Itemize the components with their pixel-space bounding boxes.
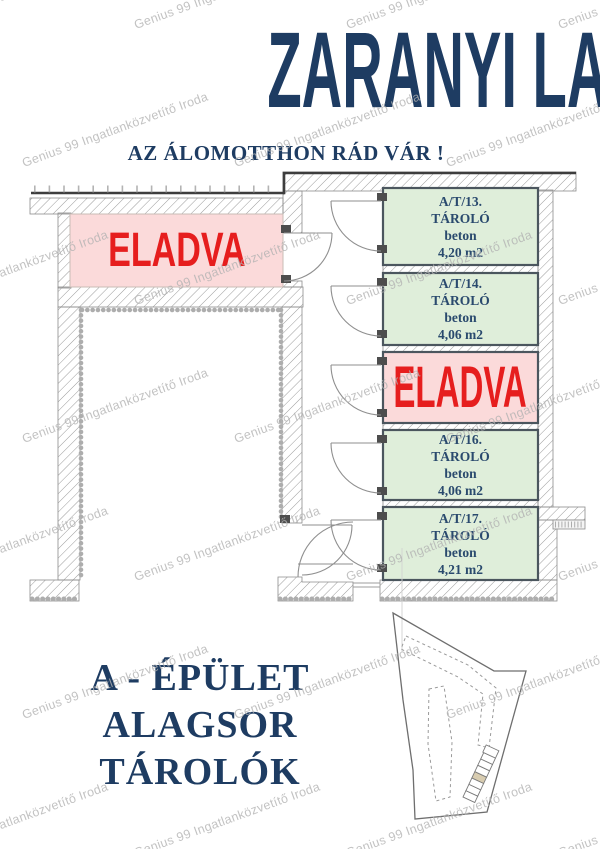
building-outline-left [428, 686, 452, 801]
unit-id: A/T/17. [439, 510, 482, 527]
door-at13 [331, 201, 381, 251]
wall-bigroom-west [58, 307, 80, 580]
unit-area: 4,06 m2 [438, 326, 483, 343]
unit-area: 4,20 m2 [438, 244, 483, 261]
wall-right-step-footing [553, 520, 585, 529]
wall-right [538, 190, 553, 507]
flyer-page: ZARANYI LAKÓPARK AZ ÁLOMOTTHON RÁD VÁR !… [0, 0, 600, 849]
footer-line1: A - ÉPÜLET [0, 655, 400, 702]
wall-bigroom-east [282, 307, 302, 523]
room-at16: A/T/16. TÁROLÓ beton 4,06 m2 [383, 430, 538, 500]
unit-type: TÁROLÓ [431, 292, 490, 309]
unit-type: TÁROLÓ [431, 527, 490, 544]
wall-right-step [538, 507, 585, 520]
unit-material: beton [444, 544, 476, 561]
unit-material: beton [444, 227, 476, 244]
site-boundary [393, 613, 526, 819]
unit-material: beton [444, 465, 476, 482]
unit-type: TÁROLÓ [431, 210, 490, 227]
door-sold-right [331, 365, 381, 415]
room-sold-right: ELADVA [383, 352, 538, 423]
unit-id: A/T/13. [439, 193, 482, 210]
page-subtitle: AZ ÁLOMOTTHON RÁD VÁR ! [0, 141, 572, 165]
footer-heading: A - ÉPÜLET ALAGSOR TÁROLÓK [0, 655, 400, 796]
door-at14 [331, 286, 381, 336]
sold-label: ELADVA [108, 227, 246, 275]
room-at14: A/T/14. TÁROLÓ beton 4,06 m2 [383, 273, 538, 345]
room-at13: A/T/13. TÁROLÓ beton 4,20 m2 [383, 188, 538, 265]
page-title: ZARANYI LAKÓPARK [0, 16, 600, 124]
building-outline-upper [401, 636, 496, 748]
unit-area: 4,06 m2 [438, 482, 483, 499]
wall-top-left-band [30, 198, 283, 214]
site-map [393, 613, 526, 819]
unit-id: A/T/16. [439, 431, 482, 448]
wall-between-13-14 [383, 265, 538, 273]
door-at17 [331, 520, 381, 570]
footer-line3: TÁROLÓK [0, 749, 400, 796]
unit-id: A/T/14. [439, 275, 482, 292]
wall-bigroom-top [58, 287, 303, 307]
room-at17: A/T/17. TÁROLÓ beton 4,21 m2 [383, 507, 538, 580]
door-sold-left [284, 233, 332, 281]
door-bigroom [302, 525, 352, 575]
sold-label: ELADVA [394, 359, 527, 417]
building-a-strip [462, 745, 499, 803]
door-at16 [331, 443, 381, 493]
page-title-text: ZARANYI LAKÓPARK [267, 16, 600, 124]
unit-type: TÁROLÓ [431, 448, 490, 465]
unit-material: beton [444, 309, 476, 326]
footer-line2: ALAGSOR [0, 702, 400, 749]
room-sold-left: ELADVA [70, 214, 283, 287]
unit-area: 4,21 m2 [438, 561, 483, 578]
